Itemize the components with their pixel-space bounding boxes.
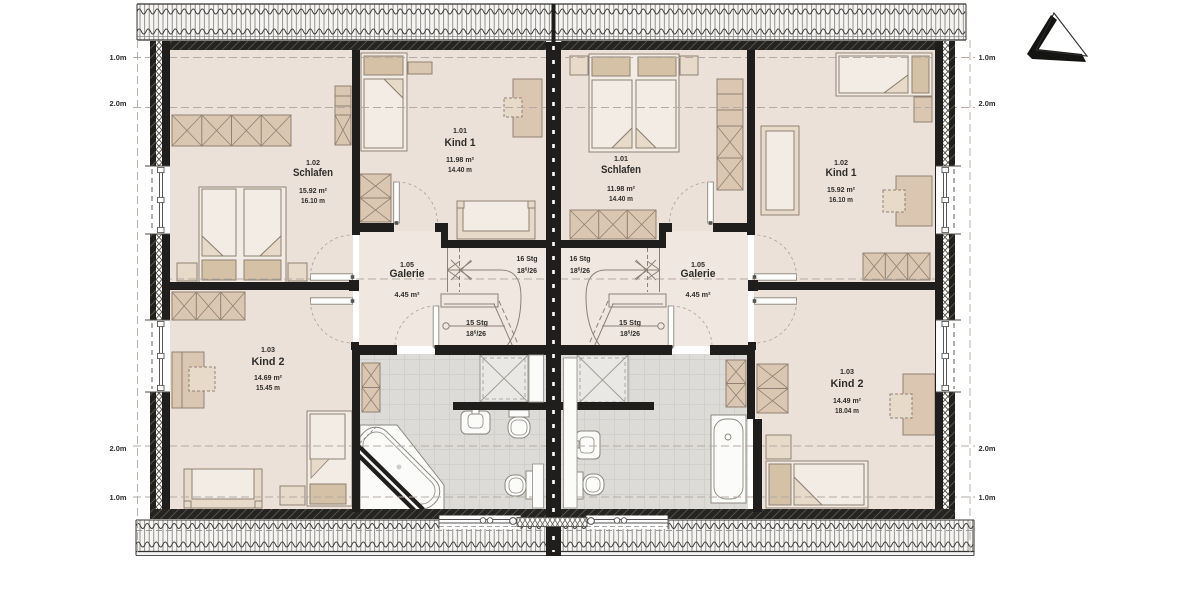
svg-text:15.92 m²: 15.92 m² — [827, 187, 856, 194]
svg-text:1.03: 1.03 — [261, 347, 275, 354]
svg-text:1.0m: 1.0m — [979, 53, 996, 62]
svg-text:185/26: 185/26 — [517, 267, 537, 275]
svg-text:11.98 m²: 11.98 m² — [607, 186, 636, 193]
svg-text:Galerie: Galerie — [390, 268, 425, 280]
svg-text:4.45 m²: 4.45 m² — [686, 292, 712, 299]
svg-text:185/26: 185/26 — [570, 267, 590, 275]
svg-text:Schlafen: Schlafen — [293, 167, 333, 179]
svg-text:Kind 2: Kind 2 — [831, 378, 864, 390]
svg-text:1.0m: 1.0m — [110, 493, 127, 502]
svg-text:16 Stg: 16 Stg — [517, 256, 538, 263]
svg-text:185/26: 185/26 — [620, 330, 640, 338]
svg-text:Galerie: Galerie — [681, 268, 716, 280]
svg-text:15 Stg: 15 Stg — [466, 320, 488, 327]
svg-text:1.03: 1.03 — [840, 369, 854, 376]
svg-text:16 Stg: 16 Stg — [570, 256, 591, 263]
svg-text:14.40 m: 14.40 m — [448, 167, 472, 174]
svg-text:Kind 2: Kind 2 — [252, 356, 285, 368]
svg-text:2.0m: 2.0m — [979, 444, 996, 453]
svg-text:1.02: 1.02 — [834, 160, 848, 167]
svg-text:Schlafen: Schlafen — [601, 164, 641, 176]
svg-text:2.0m: 2.0m — [110, 99, 127, 108]
svg-text:1.0m: 1.0m — [979, 493, 996, 502]
svg-text:1.0m: 1.0m — [110, 53, 127, 62]
svg-text:2.0m: 2.0m — [110, 444, 127, 453]
svg-text:16.10 m: 16.10 m — [301, 198, 325, 205]
svg-text:2.0m: 2.0m — [979, 99, 996, 108]
svg-text:185/26: 185/26 — [466, 330, 486, 338]
svg-text:11.98 m²: 11.98 m² — [446, 157, 475, 164]
svg-text:Kind 1: Kind 1 — [445, 137, 476, 149]
svg-text:15 Stg: 15 Stg — [619, 320, 641, 327]
svg-text:Kind 1: Kind 1 — [826, 167, 857, 179]
svg-text:15.92 m²: 15.92 m² — [299, 188, 328, 195]
svg-text:14.49 m²: 14.49 m² — [833, 398, 862, 405]
svg-text:1.01: 1.01 — [614, 156, 628, 163]
svg-text:14.69 m²: 14.69 m² — [254, 375, 283, 382]
svg-text:4.45 m²: 4.45 m² — [395, 292, 421, 299]
svg-text:14.40 m: 14.40 m — [609, 196, 633, 203]
svg-text:18.04 m: 18.04 m — [835, 408, 859, 415]
svg-text:1.02: 1.02 — [306, 160, 320, 167]
svg-text:1.01: 1.01 — [453, 128, 467, 135]
svg-text:16.10 m: 16.10 m — [829, 197, 853, 204]
svg-text:15.45 m: 15.45 m — [256, 385, 280, 392]
